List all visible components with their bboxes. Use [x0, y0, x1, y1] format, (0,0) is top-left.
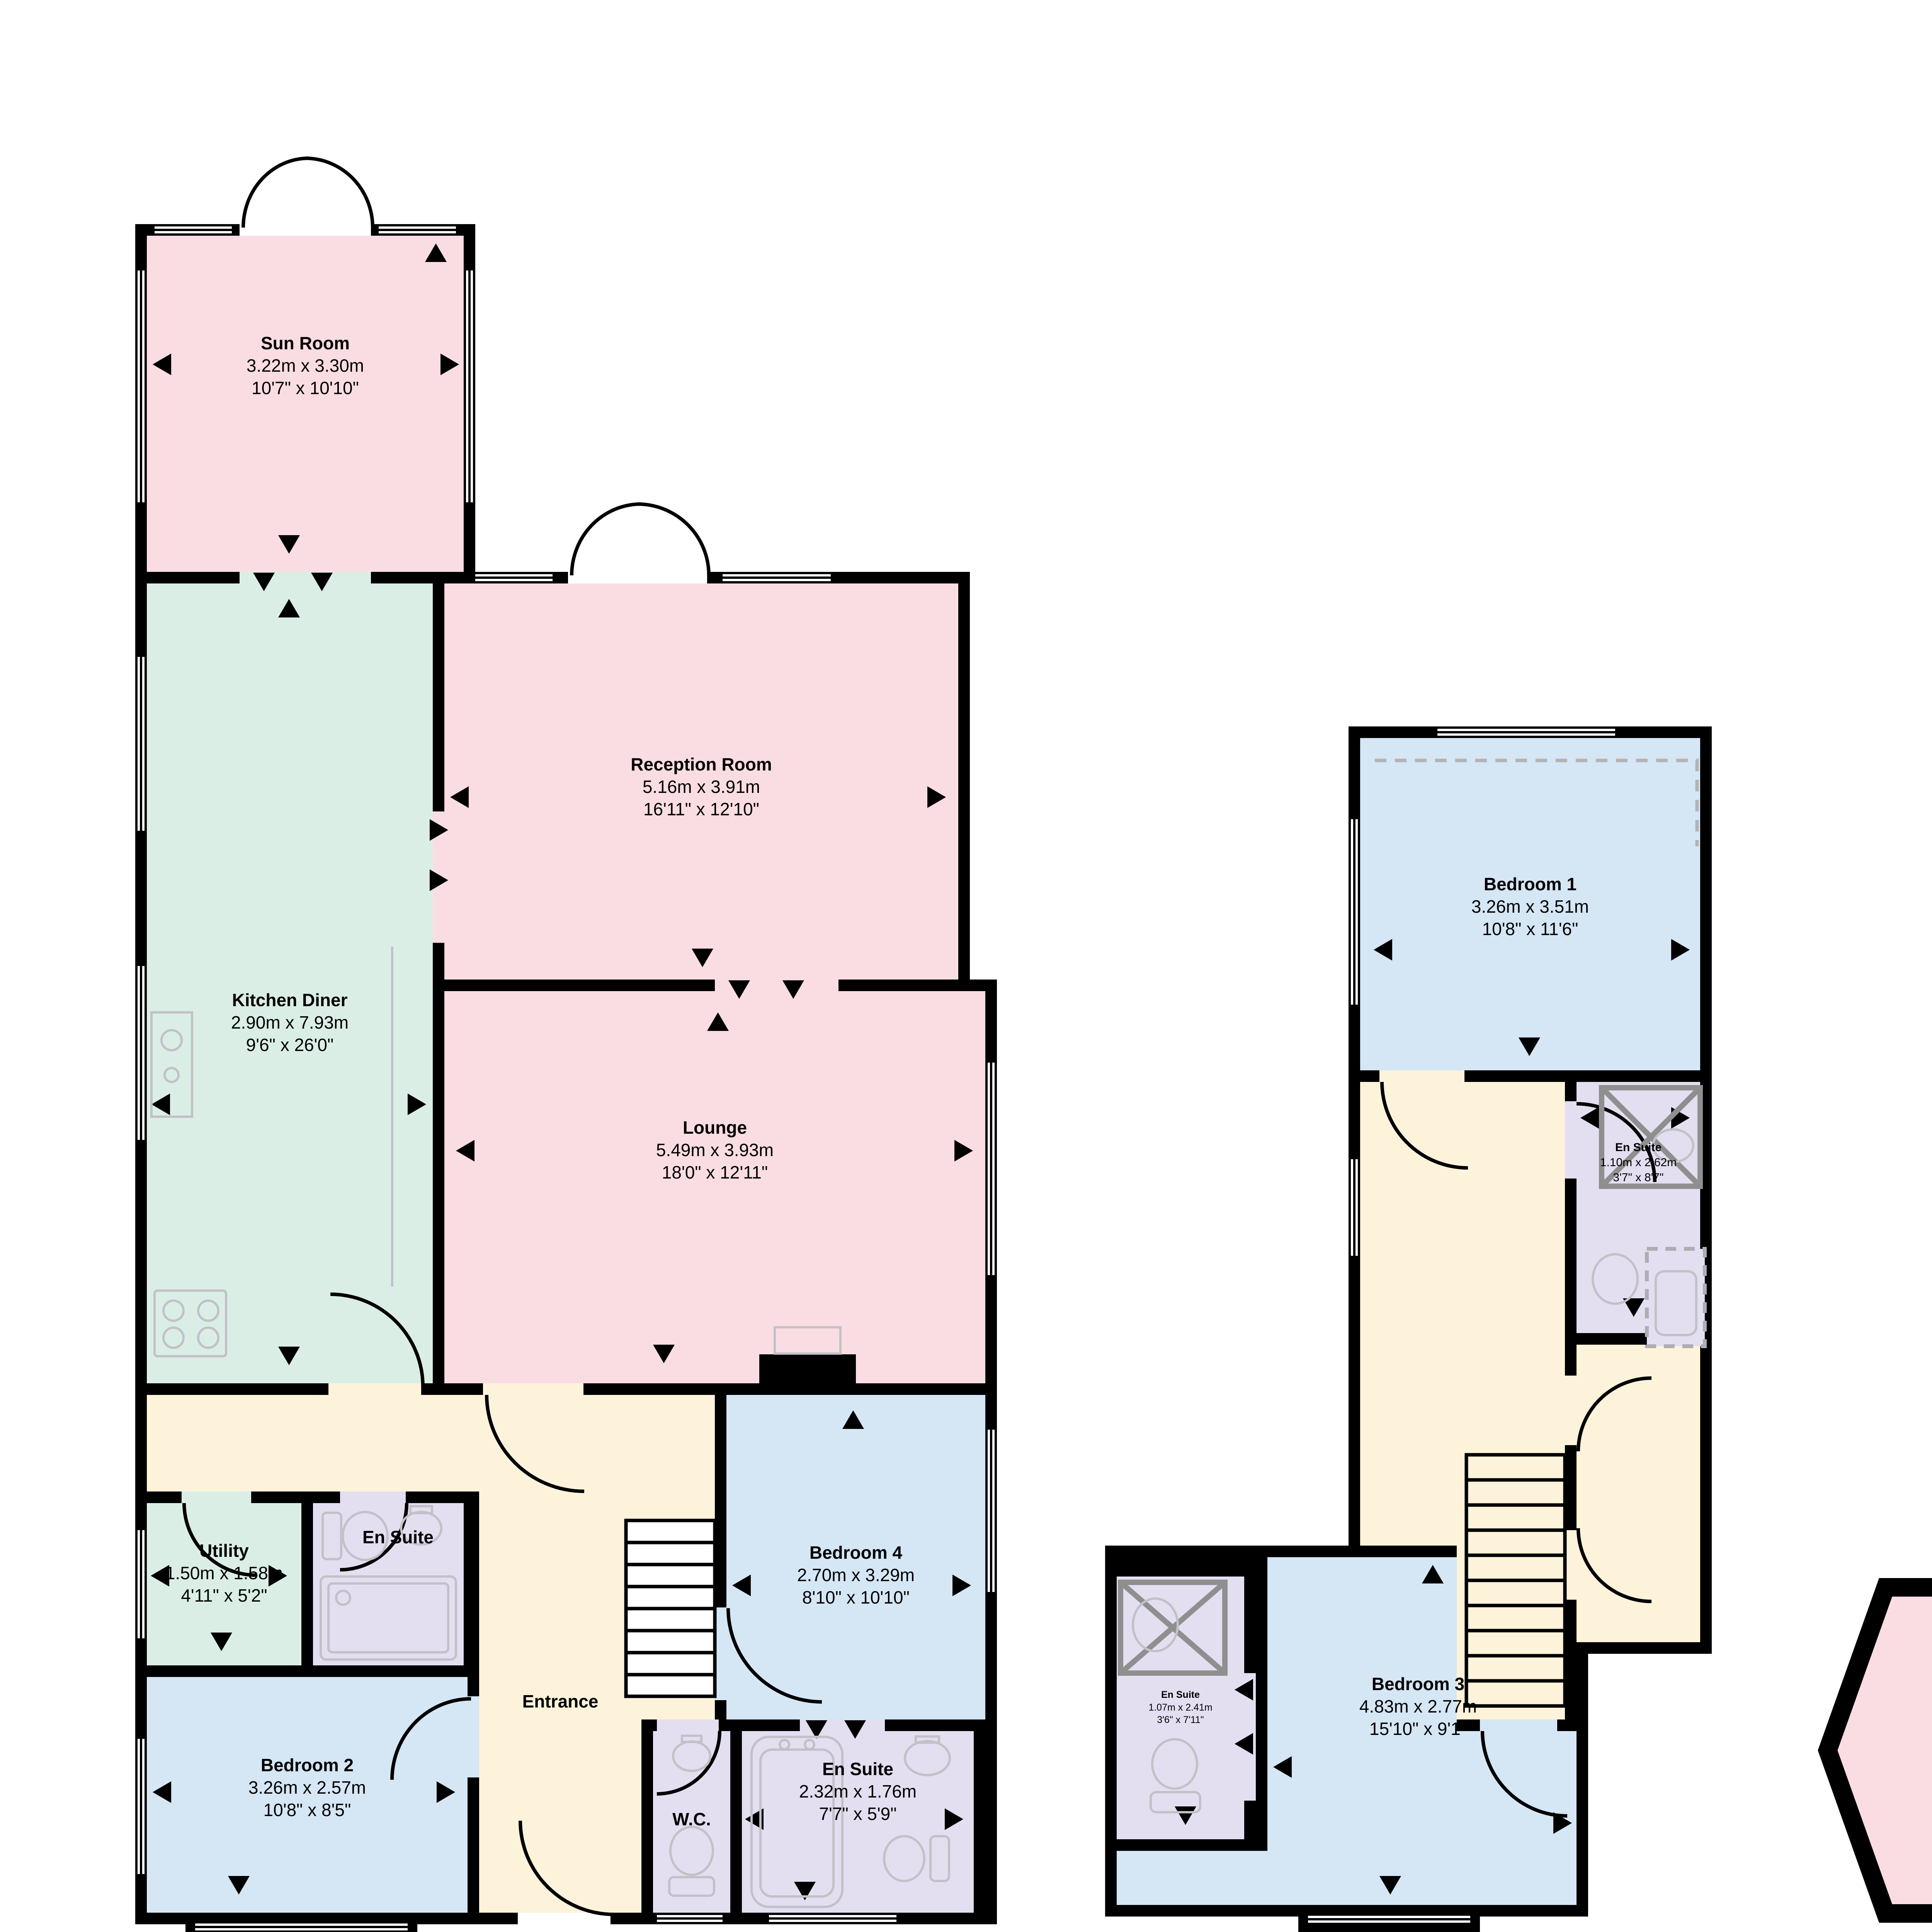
ensuite-first-left-label: En Suite 1.07m x 2.41m 3'6" x 7'11"	[1119, 1689, 1242, 1726]
bedroom1-window-top	[1437, 726, 1615, 738]
ensuite-first-left-door-icon	[1235, 1733, 1253, 1755]
dimension-arrow	[278, 599, 300, 617]
dimension-arrow	[450, 786, 469, 808]
room-dims-m: 3.07m x 3.65m	[1895, 1715, 1932, 1737]
room-dims-ft: 10'8" x 11'6"	[1414, 918, 1646, 940]
ensuite-first-right-label: En Suite 1.10m x 2.62m 3'7" x 8'7"	[1569, 1140, 1708, 1185]
kitchen-window-upper	[135, 657, 147, 831]
bedroom4-ensuite-door-icon	[844, 1720, 866, 1739]
landing-right-door-gap-upper	[1565, 1376, 1577, 1445]
room-name: Bedroom 2	[191, 1754, 423, 1777]
dimension-arrow	[437, 1781, 455, 1803]
reception-door-arc-left	[570, 502, 641, 575]
lounge-hall-door-gap	[483, 1383, 583, 1395]
dimension-arrow	[794, 1882, 816, 1900]
kitchen-reception-door-icon	[430, 819, 448, 841]
reception-door-arc-right	[638, 502, 711, 575]
room-dims-ft: 10'1" x 12'0"	[1895, 1737, 1932, 1760]
dimension-arrow	[692, 949, 713, 967]
ensuite-ground-label: En Suite 2.32m x 1.76m 7'7" x 5'9"	[742, 1758, 974, 1825]
lounge-label: Lounge 5.49m x 3.93m 18'0" x 12'11"	[599, 1117, 831, 1184]
sun-room-label: Sun Room 3.22m x 3.30m 10'7" x 10'10"	[189, 332, 421, 400]
room-name: Entrance	[464, 1690, 657, 1713]
room-dims-m: 3.26m x 2.57m	[191, 1777, 423, 1799]
lounge-area	[444, 991, 985, 1383]
room-dims-ft: 15'10" x 9'1"	[1302, 1718, 1534, 1740]
dimension-arrow	[1374, 939, 1392, 961]
entrance-hall-mid	[479, 1492, 715, 1719]
floorplan-canvas: Sun Room 3.22m x 3.30m 10'7" x 10'10" Ki…	[0, 0, 1932, 1932]
sunroom-door-arc-right	[305, 156, 374, 228]
entrance-label: Entrance	[464, 1690, 657, 1713]
room-dims-ft: 16'11" x 12'10"	[585, 798, 817, 821]
room-dims-ft: 18'0" x 12'11"	[599, 1162, 831, 1184]
dimension-arrow	[408, 1094, 426, 1115]
bedroom2-bay-window	[195, 1921, 408, 1932]
room-dims-ft: 9'6" x 26'0"	[174, 1034, 406, 1056]
dimension-arrow	[153, 1781, 171, 1803]
dimension-arrow	[425, 243, 447, 262]
room-dims-m: 1.10m x 2.62m	[1569, 1155, 1708, 1170]
bedroom4-ensuite-door-icon	[806, 1720, 827, 1739]
dimension-arrow	[1671, 1107, 1690, 1129]
dimension-arrow	[1553, 1812, 1572, 1834]
bedroom1-door-gap	[1379, 1070, 1464, 1082]
dimension-arrow	[954, 1140, 973, 1162]
bedroom1-window-left	[1349, 819, 1360, 1005]
room-dims-m: 4.83m x 2.77m	[1302, 1696, 1534, 1718]
dimension-arrow	[1175, 1806, 1196, 1825]
landing-window-left	[1349, 1159, 1360, 1256]
ensuite-ground-small-label: En Suite	[332, 1526, 464, 1549]
kitchen-window-lower	[135, 966, 147, 1140]
lounge-window-right	[985, 1063, 997, 1275]
kitchen-reception-door-icon	[430, 869, 448, 891]
dimension-arrow	[927, 786, 946, 808]
dimension-arrow	[153, 354, 171, 375]
landing-right-door-gap-lower	[1565, 1530, 1577, 1600]
dimension-arrow	[1422, 1565, 1444, 1583]
room-dims-ft: 3'7" x 8'7"	[1569, 1170, 1708, 1185]
kitchen-diner-label: Kitchen Diner 2.90m x 7.93m 9'6" x 26'0"	[174, 989, 406, 1056]
room-dims-m: 5.16m x 3.91m	[585, 776, 817, 798]
entrance-hall-top	[147, 1395, 715, 1492]
room-dims-ft: 7'7" x 5'9"	[742, 1803, 974, 1825]
reception-window-right	[723, 572, 831, 583]
utility-door-gap	[182, 1492, 251, 1503]
utility-label: Utility 1.50m x 1.58m 4'11" x 5'2"	[147, 1540, 301, 1607]
dimension-arrow	[456, 1140, 474, 1162]
sunroom-kitchen-door-icon	[311, 573, 333, 591]
room-dims-ft: 3'6" x 7'11"	[1119, 1714, 1242, 1726]
room-dims-m: 2.90m x 7.93m	[174, 1012, 406, 1034]
bedroom4-window-right	[985, 1430, 997, 1592]
room-name: Reception Room	[585, 753, 817, 776]
room-name: Lounge	[599, 1117, 831, 1139]
dimension-arrow	[707, 1012, 729, 1031]
room-dims-ft: 4'11" x 5'2"	[147, 1585, 301, 1607]
dimension-arrow	[1273, 1756, 1292, 1778]
room-name: Bedroom 3	[1302, 1673, 1534, 1696]
bedroom3-label: Bedroom 3 4.83m x 2.77m 15'10" x 9'1"	[1302, 1673, 1534, 1740]
bbq-house-label: BBQ House 3.07m x 3.65m 10'1" x 12'0"	[1895, 1692, 1932, 1760]
dimension-arrow	[1519, 1037, 1540, 1056]
dimension-arrow	[1855, 1739, 1873, 1760]
reception-lounge-door-icon	[782, 980, 804, 999]
room-dims-m: 3.26m x 3.51m	[1414, 896, 1646, 918]
bedroom3-bay-window	[1308, 1913, 1470, 1925]
room-name: Kitchen Diner	[174, 989, 406, 1012]
reception-lounge-door-icon	[728, 980, 750, 999]
dimension-arrow	[228, 1876, 250, 1895]
sunroom-window-left	[135, 270, 147, 502]
room-dims-m: 3.22m x 3.30m	[189, 355, 421, 377]
bedroom1-label: Bedroom 1 3.26m x 3.51m 10'8" x 11'6"	[1414, 873, 1646, 940]
dimension-arrow	[440, 354, 459, 375]
room-name: En Suite	[1119, 1689, 1242, 1701]
bedroom3-area-left	[1117, 1851, 1267, 1905]
dimension-arrow	[1580, 1107, 1599, 1129]
wc-window-bottom	[657, 1913, 723, 1924]
room-dims-m: 5.49m x 3.93m	[599, 1139, 831, 1162]
bedroom4-label: Bedroom 4 2.70m x 3.29m 8'10" x 10'10"	[740, 1542, 972, 1609]
room-name: BBQ House	[1895, 1692, 1932, 1715]
room-dims-m: 1.50m x 1.58m	[147, 1562, 301, 1585]
dimension-arrow	[151, 1094, 170, 1115]
dimension-arrow	[1623, 1298, 1645, 1317]
room-name: Utility	[147, 1540, 301, 1562]
bedroom2-window-left	[135, 1739, 147, 1874]
sunroom-kitchen-door-icon	[253, 573, 275, 591]
sunroom-window-top-right	[379, 224, 456, 236]
room-name: En Suite	[332, 1526, 464, 1549]
room-dims-ft: 10'7" x 10'10"	[189, 377, 421, 400]
bedroom2-label: Bedroom 2 3.26m x 2.57m 10'8" x 8'5"	[191, 1754, 423, 1821]
wc-label: W.C.	[634, 1808, 750, 1831]
wc-door-gap	[657, 1719, 719, 1731]
ensuite-ground-window-bottom	[769, 1913, 896, 1924]
sunroom-window-top-left	[155, 224, 232, 236]
dimension-arrow	[1671, 939, 1690, 961]
room-name: En Suite	[1569, 1140, 1708, 1155]
dimension-arrow	[211, 1633, 232, 1651]
room-name: En Suite	[742, 1758, 974, 1781]
dimension-arrow	[842, 1410, 864, 1429]
room-dims-m: 2.70m x 3.29m	[740, 1564, 972, 1587]
reception-window-left	[475, 572, 553, 583]
dimension-arrow	[653, 1345, 675, 1363]
sunroom-window-right	[464, 270, 475, 502]
kitchen-diner-area	[147, 583, 433, 1383]
dimension-arrow	[278, 1347, 300, 1365]
bedroom4-door-gap	[715, 1607, 726, 1700]
dimension-arrow	[278, 535, 300, 554]
room-dims-ft: 10'8" x 8'5"	[191, 1799, 423, 1821]
sun-room-area	[147, 236, 464, 572]
room-name: Bedroom 1	[1414, 873, 1646, 896]
reception-room-label: Reception Room 5.16m x 3.91m 16'11" x 12…	[585, 753, 817, 821]
room-name: W.C.	[634, 1808, 750, 1831]
room-dims-m: 2.32m x 1.76m	[742, 1781, 974, 1803]
room-name: Sun Room	[189, 332, 421, 355]
room-name: Bedroom 4	[740, 1542, 972, 1564]
room-dims-m: 1.07m x 2.41m	[1119, 1701, 1242, 1714]
ensuite-ground-small-door-gap	[340, 1492, 406, 1503]
dimension-arrow	[1379, 1876, 1401, 1895]
utility-window-left	[135, 1530, 147, 1638]
sunroom-door-arc-left	[241, 156, 309, 228]
room-dims-ft: 8'10" x 10'10"	[740, 1587, 972, 1609]
